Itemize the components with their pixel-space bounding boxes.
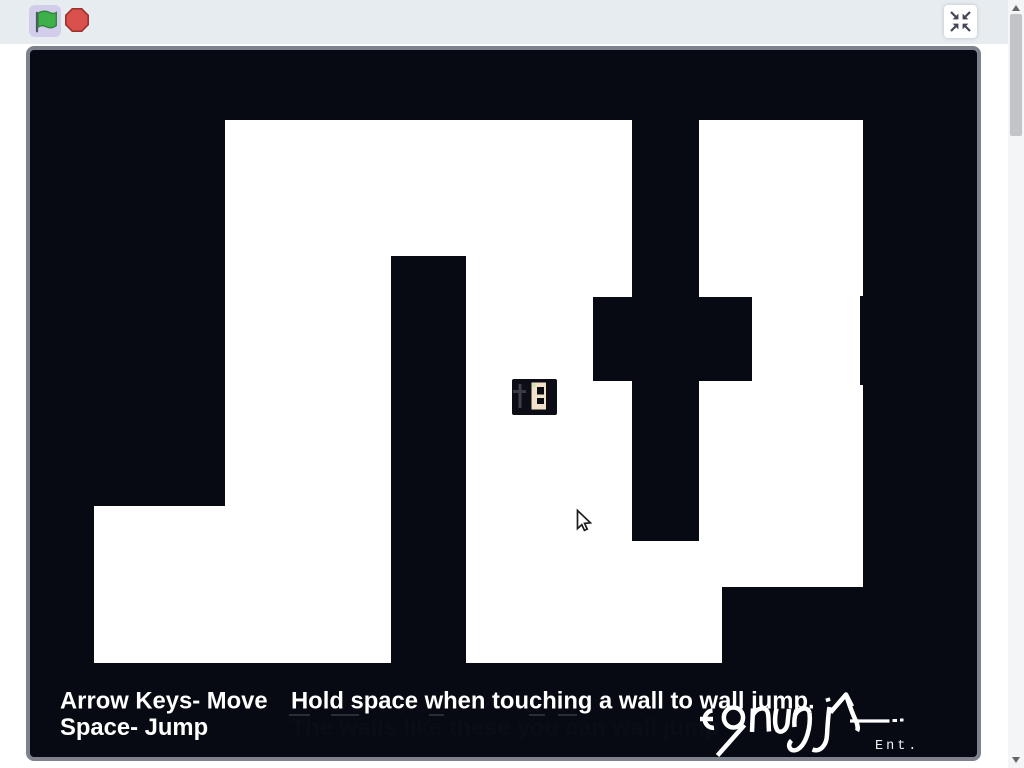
svg-text:Arrow Keys- Move: Arrow Keys- Move [60,688,268,715]
svg-text:The walls like these you can w: The walls like these you can wall jump [291,714,719,740]
svg-text:Hold space when touching a wal: Hold space when touching a wall to wall … [291,688,815,715]
svg-text:Space- Jump: Space- Jump [60,714,208,741]
svg-text:Ent.: Ent. [875,739,919,754]
